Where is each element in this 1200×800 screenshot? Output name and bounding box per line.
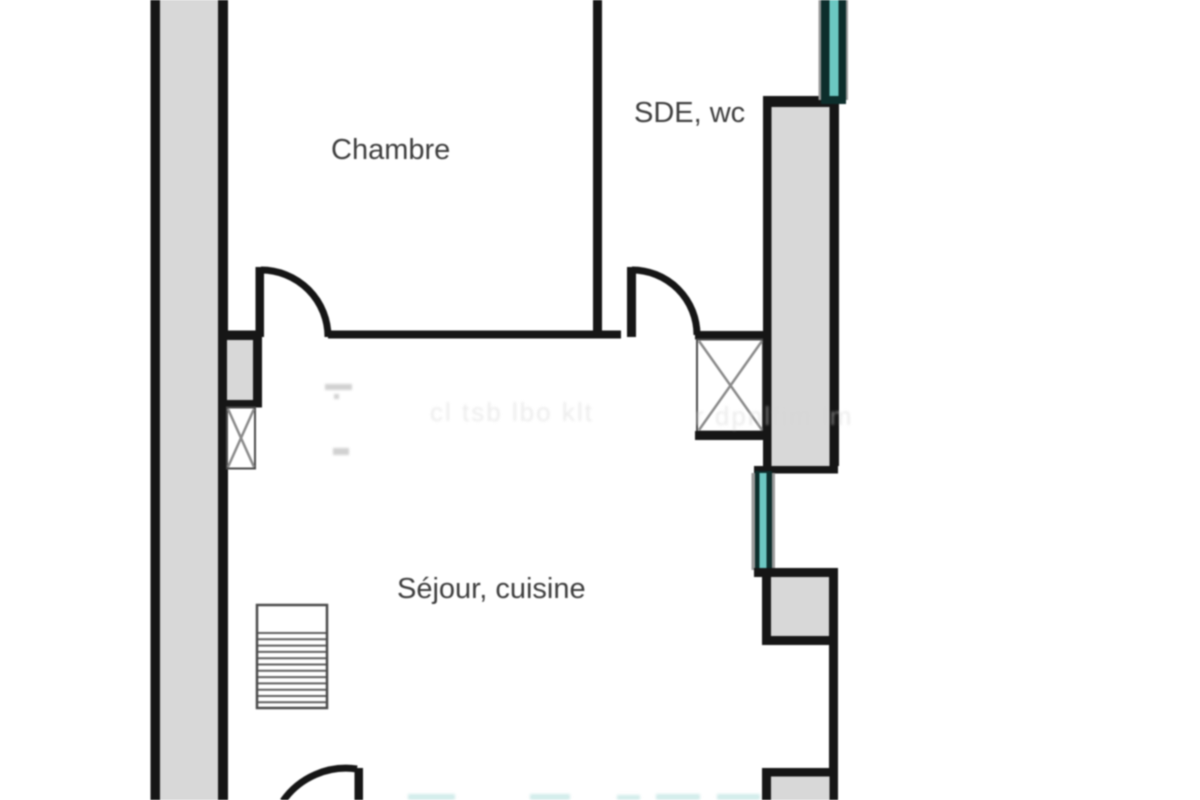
- svg-text:SDE, wc: SDE, wc: [634, 97, 745, 129]
- svg-text:cl tsb lbo klt: cl tsb lbo klt: [430, 397, 594, 427]
- svg-text:r dpnlfim lm: r dpnlfim lm: [695, 401, 853, 431]
- svg-text:Séjour, cuisine: Séjour, cuisine: [397, 573, 586, 605]
- svg-text:Chambre: Chambre: [331, 134, 450, 166]
